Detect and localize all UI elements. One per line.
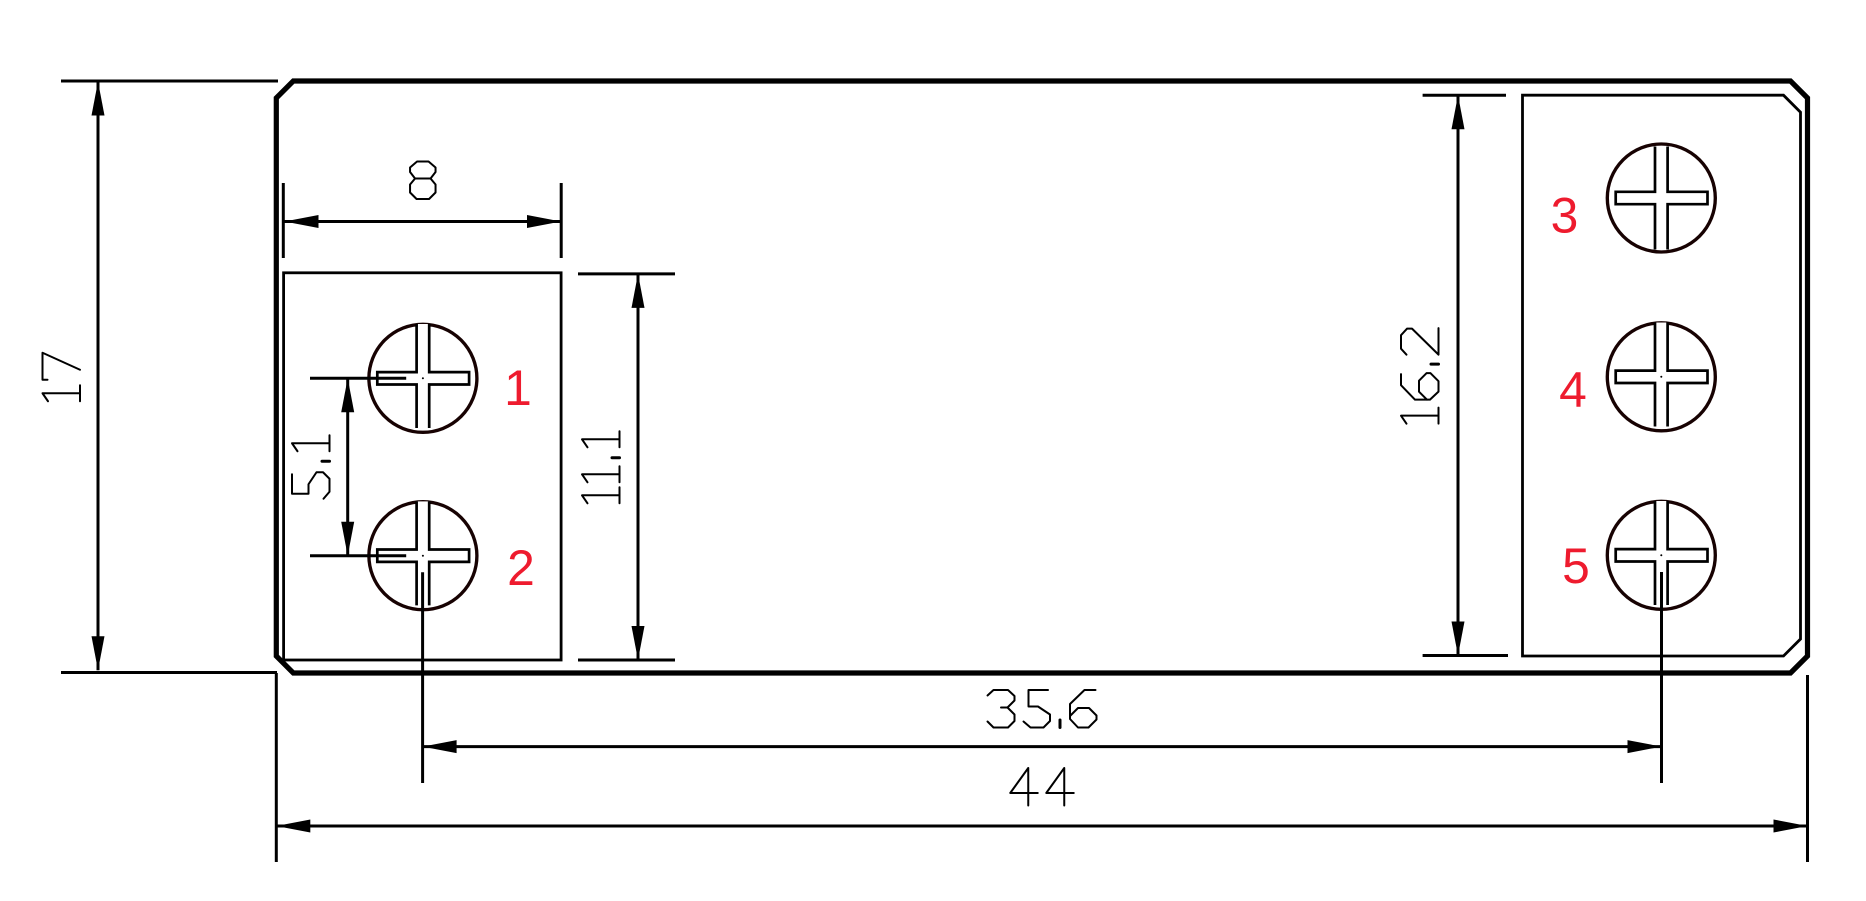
svg-text:1: 1	[504, 360, 532, 416]
svg-text:5: 5	[1562, 538, 1590, 594]
svg-text:2: 2	[507, 540, 535, 596]
svg-text:4: 4	[1559, 362, 1587, 418]
svg-text:3: 3	[1551, 188, 1579, 244]
